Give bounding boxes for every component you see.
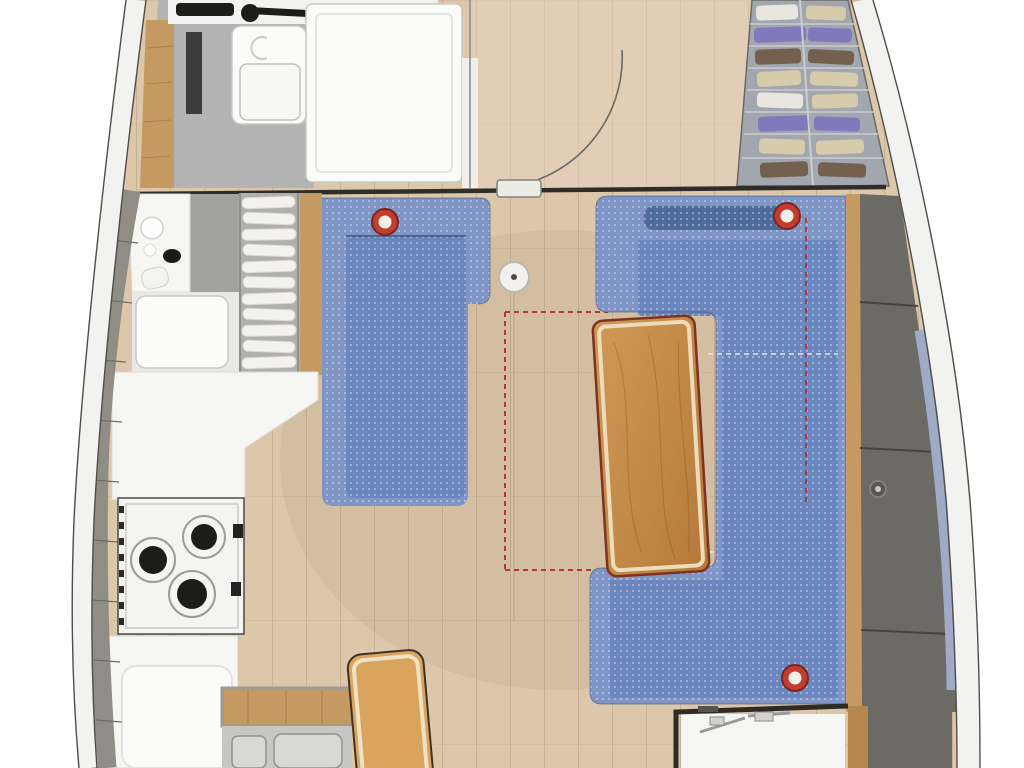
cup-holder <box>870 481 886 497</box>
galley-sink-fwd <box>136 296 228 368</box>
port-settee <box>322 198 490 506</box>
floor-plan-canvas <box>0 0 1024 768</box>
door-leaf <box>497 180 541 197</box>
stove <box>118 498 244 634</box>
mast-post <box>499 262 529 292</box>
double-sink <box>222 726 352 768</box>
burner-1 <box>191 524 217 550</box>
faucet-left <box>176 3 234 16</box>
aft-wood-strip <box>848 706 868 768</box>
port-settee-mattress <box>346 236 466 498</box>
companionway-step <box>347 649 435 768</box>
sink-basin-small <box>232 736 266 768</box>
aft-grey-panel <box>868 712 952 768</box>
fore-cabin-floor <box>470 0 756 190</box>
cutting-board <box>222 688 352 726</box>
burner-2 <box>139 546 167 574</box>
speaker-port <box>372 209 398 235</box>
galley-grey-counter <box>188 194 240 300</box>
head-compartment <box>140 0 478 188</box>
shower-stall <box>306 4 462 182</box>
head-hull-trim-wood <box>140 20 174 188</box>
speaker-starboard-fwd <box>774 203 800 229</box>
stove-knob-1 <box>233 524 243 538</box>
sailboat-floor-plan <box>0 0 1024 768</box>
saloon-table <box>592 315 709 577</box>
galley-trim-wood <box>300 193 322 375</box>
head-dark-panel <box>186 32 202 114</box>
aft-berth <box>681 714 845 768</box>
sink-basin-large <box>274 734 342 768</box>
oven-panel <box>122 666 232 768</box>
aft-cabin <box>676 706 952 768</box>
burner-3 <box>177 579 207 609</box>
toilet-lid <box>240 64 300 120</box>
stove-knob-2 <box>231 582 241 596</box>
coffee-cup <box>163 249 181 263</box>
dish-rack <box>240 193 300 378</box>
speaker-starboard-aft <box>782 665 808 691</box>
toilet-vanity <box>232 26 306 124</box>
